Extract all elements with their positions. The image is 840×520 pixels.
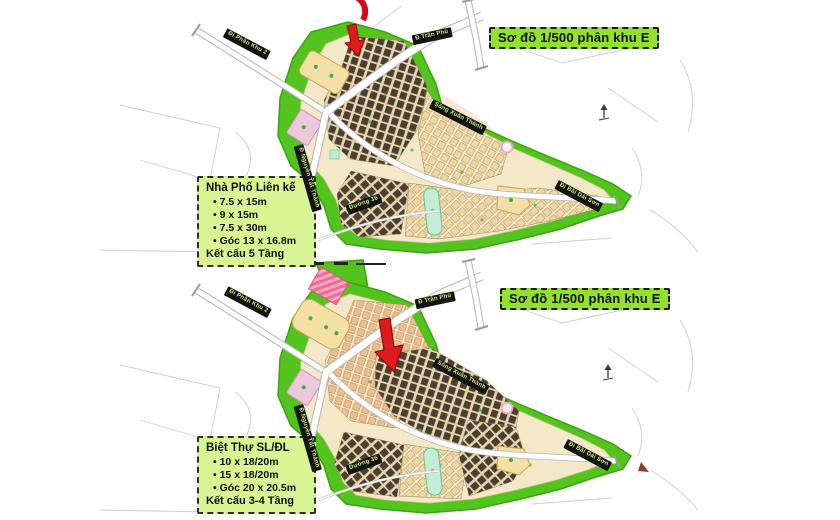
spec-item: 7.5 x 30m — [213, 222, 308, 234]
spec-box-townhouse: Nhà Phố Liên kế 7.5 x 15m 9 x 15m 7.5 x … — [197, 176, 316, 267]
tree-dot — [509, 458, 513, 462]
plan-title-badge: Sơ đồ 1/500 phân khu E — [489, 27, 659, 49]
spec-item: 10 x 18/20m — [213, 456, 308, 468]
spec-box-footer: Kết cấu 3-4 Tầng — [206, 495, 308, 507]
site-plan-page: Sơ đồ 1/500 phân khu E Nhà Phố Liên kế 7… — [0, 0, 840, 520]
spec-box-title: Biệt Thự SL/ĐL — [206, 442, 308, 454]
spec-item: 7.5 x 15m — [213, 196, 308, 208]
spec-box-villa: Biệt Thự SL/ĐL 10 x 18/20m 15 x 18/20m G… — [197, 436, 316, 514]
roundabout-marker — [502, 403, 513, 414]
spec-item: Góc 13 x 16.8m — [213, 235, 308, 247]
roundabout-marker — [502, 142, 513, 153]
north-arrow-icon — [603, 364, 613, 380]
spec-item: Góc 20 x 20.5m — [213, 482, 308, 494]
spec-list: 7.5 x 15m 9 x 15m 7.5 x 30m Góc 13 x 16.… — [206, 196, 308, 247]
spec-list: 10 x 18/20m 15 x 18/20m Góc 20 x 20.5m — [206, 456, 308, 494]
map-artifact — [638, 462, 649, 472]
spec-box-title: Nhà Phố Liên kế — [206, 182, 308, 194]
north-arrow-icon — [599, 104, 609, 120]
master-plan-canvas — [0, 0, 840, 520]
plan-title-badge: Sơ đồ 1/500 phân khu E — [500, 288, 670, 310]
spec-item: 15 x 18/20m — [213, 469, 308, 481]
parcel-teal-small — [330, 150, 339, 159]
tree-dot — [509, 198, 513, 202]
spec-box-footer: Kết cấu 5 Tầng — [206, 248, 308, 260]
spec-item: 9 x 15m — [213, 209, 308, 221]
logo-swirl — [322, 0, 366, 20]
